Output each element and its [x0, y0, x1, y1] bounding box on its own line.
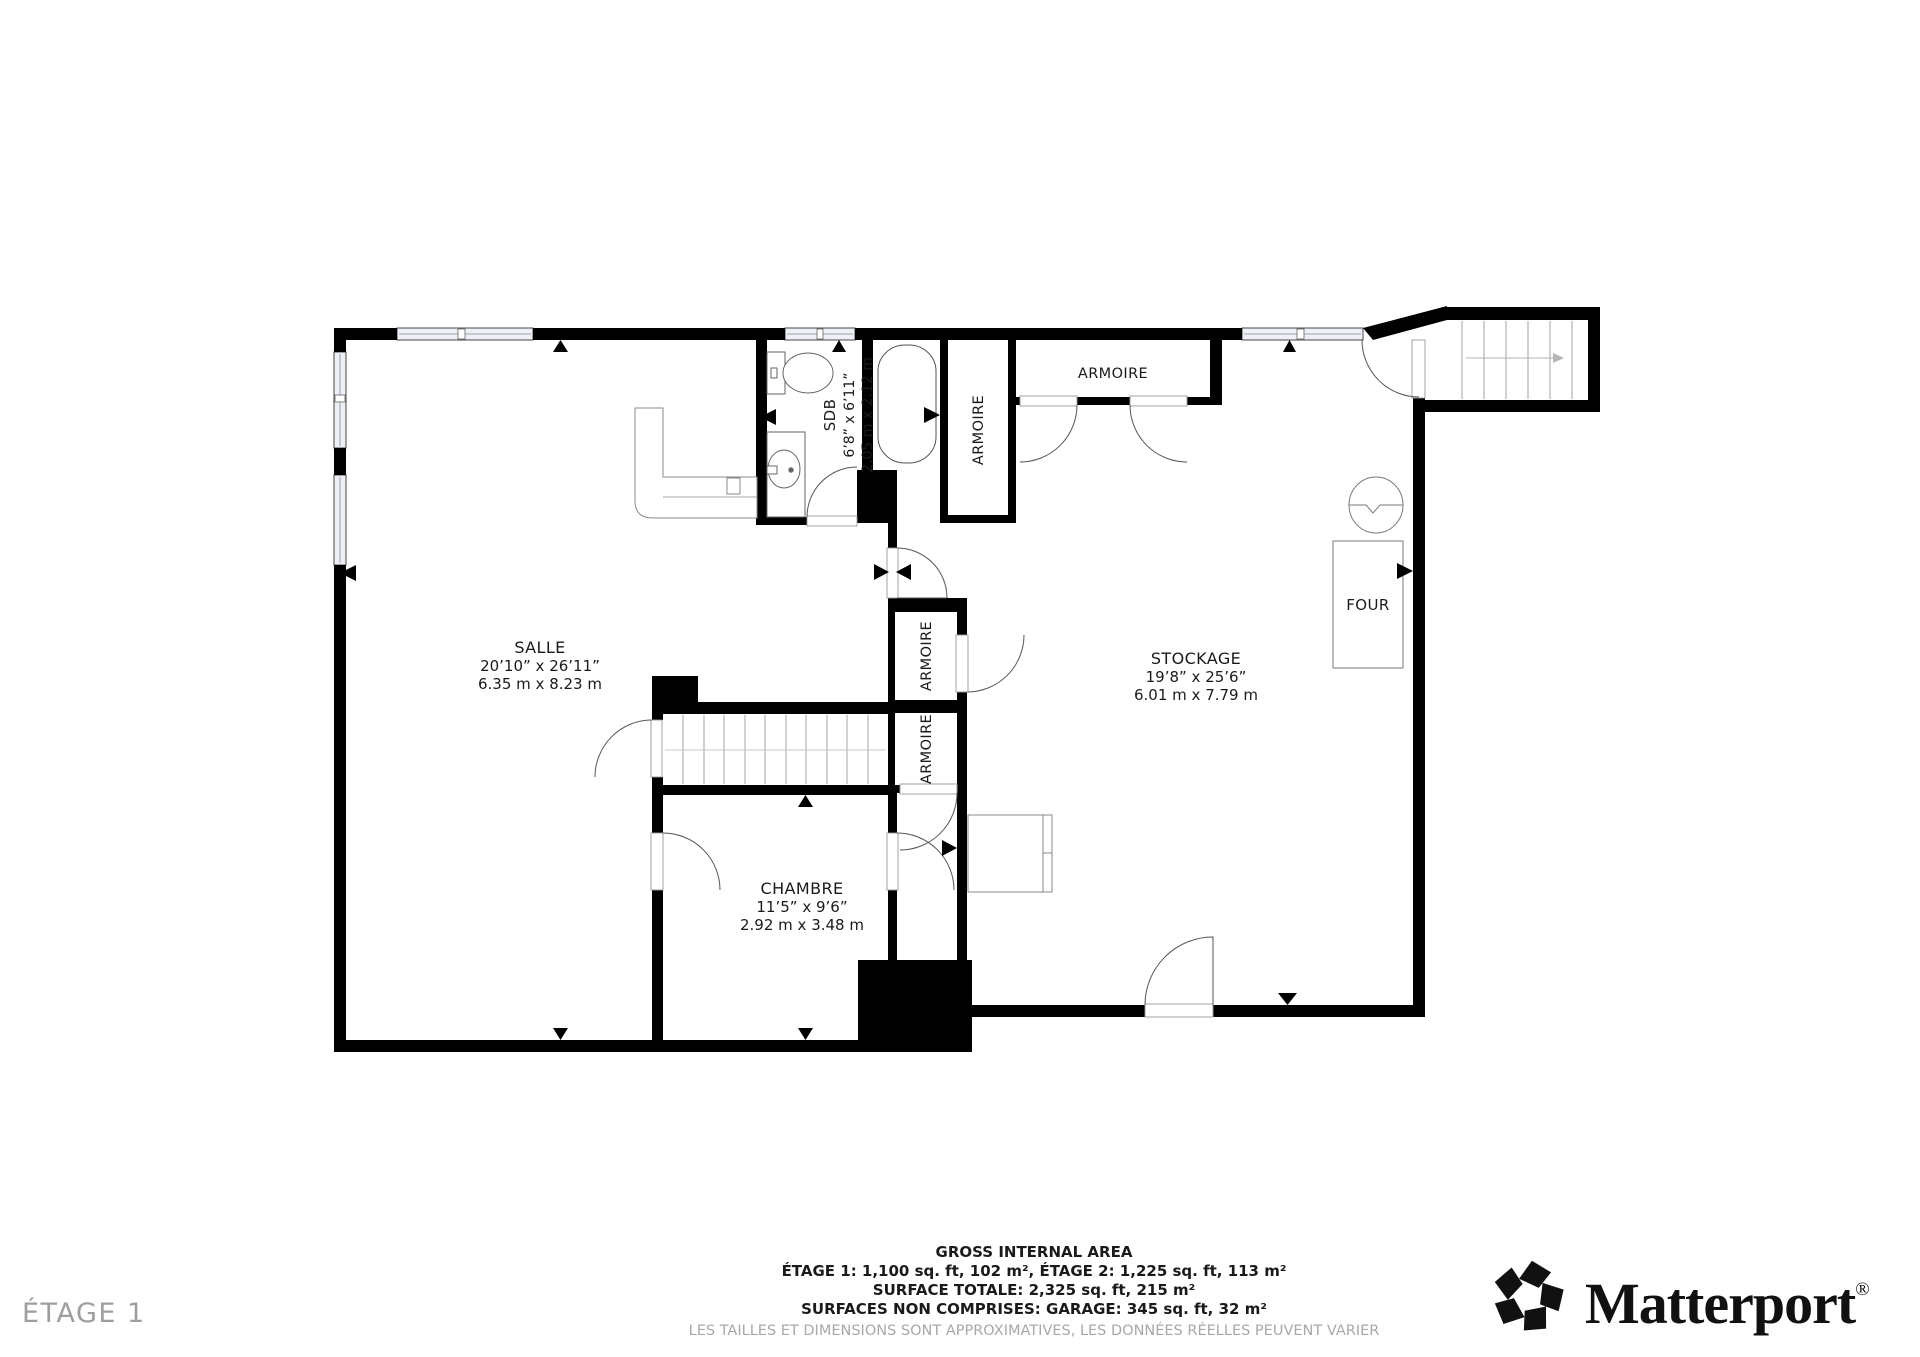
- marker-down: [798, 1028, 813, 1040]
- door-arc-chambre-left: [663, 833, 720, 890]
- marker-up: [553, 340, 568, 352]
- floors-area-line: ÉTAGE 1: 1,100 sq. ft, 102 m², ÉTAGE 2: …: [689, 1262, 1380, 1281]
- room-dim-imperial: 19’8” x 25’6”: [1146, 668, 1247, 686]
- door-arcs: [595, 340, 1419, 1005]
- door-arc-armoire-top-right: [1130, 405, 1187, 462]
- door-threshold: [651, 720, 662, 777]
- matterport-pinwheel-icon: [1487, 1255, 1569, 1339]
- door-threshold: [956, 635, 968, 692]
- excluded-area-line: SURFACES NON COMPRISES: GARAGE: 345 sq. …: [689, 1300, 1380, 1319]
- room-dim-imperial: 6’8” x 6’11”: [842, 372, 858, 457]
- kitchen-counter: [635, 408, 757, 518]
- window-mullion: [335, 395, 345, 402]
- door-arc-closet1: [967, 635, 1024, 692]
- marker-up: [1283, 340, 1296, 352]
- room-dim-metric: 2.92 m x 3.48 m: [740, 916, 864, 934]
- matterport-wordmark: Matterport®: [1585, 1247, 1869, 1347]
- door-arc-armoire-top-left: [1020, 405, 1077, 462]
- room-dim-metric: 6.01 m x 7.79 m: [1134, 686, 1258, 704]
- wall-stair-stub: [652, 676, 698, 714]
- fixtures: [635, 345, 1403, 892]
- room-name: SDB: [821, 399, 839, 432]
- toilet: [767, 352, 833, 394]
- room-dim-metric: 2.05 m x 2.12 m: [860, 357, 876, 473]
- door-arc-stair-corridor: [595, 720, 652, 777]
- door-threshold: [1130, 396, 1187, 406]
- door-threshold: [887, 833, 898, 890]
- door-arc-chambre-right: [897, 833, 954, 890]
- door-arc-stairs-upper: [1362, 340, 1419, 397]
- closet-label-top: ARMOIRE: [1078, 366, 1148, 382]
- matterport-logo: Matterport®: [1487, 1247, 1869, 1347]
- door-threshold: [651, 833, 663, 890]
- cooktop-control: [727, 478, 740, 494]
- bathroom-vanity: [767, 432, 805, 517]
- door-threshold: [1412, 340, 1425, 398]
- stairs-upper: [1462, 321, 1572, 399]
- wall-diagonal: [1363, 306, 1447, 340]
- stairs-main: [665, 715, 886, 784]
- door-arc-garage: [1145, 937, 1213, 1005]
- room-name: CHAMBRE: [761, 879, 844, 898]
- door-arc-sdb: [807, 467, 857, 517]
- stair-arrow-head: [1553, 353, 1564, 363]
- area-summary: GROSS INTERNAL AREA ÉTAGE 1: 1,100 sq. f…: [689, 1243, 1380, 1342]
- closet-label-hall-lower: ARMOIRE: [919, 714, 935, 784]
- water-heater: [1349, 477, 1403, 533]
- closet-label-bathtub: ARMOIRE: [971, 395, 987, 465]
- door-threshold: [1145, 1004, 1213, 1017]
- marker-up: [798, 795, 813, 807]
- page: { "floor_label": "ÉTAGE 1", "rooms": { "…: [0, 0, 1920, 1357]
- wall-block-sdb: [857, 470, 897, 523]
- room-dim-imperial: 11’5” x 9’6”: [756, 898, 847, 916]
- faucet: [767, 466, 777, 474]
- floor-label: ÉTAGE 1: [22, 1298, 146, 1329]
- room-name: STOCKAGE: [1151, 649, 1241, 668]
- room-dim-imperial: 20’10” x 26’11”: [480, 657, 600, 675]
- washer: [968, 815, 1052, 892]
- closet-label-hall-upper: ARMOIRE: [919, 621, 935, 691]
- floor-plan-canvas: SALLE 20’10” x 26’11” 6.35 m x 8.23 m ST…: [0, 0, 1920, 1357]
- room-label-salle: SALLE 20’10” x 26’11” 6.35 m x 8.23 m: [478, 638, 602, 693]
- marker-right: [1397, 563, 1413, 579]
- window-mullion: [458, 329, 465, 339]
- total-area-line: SURFACE TOTALE: 2,325 sq. ft, 215 m²: [689, 1281, 1380, 1300]
- door-threshold: [900, 784, 957, 794]
- bathtub: [878, 345, 936, 463]
- wall-block-bottom: [858, 960, 972, 1052]
- room-dim-metric: 6.35 m x 8.23 m: [478, 675, 602, 693]
- room-name: SALLE: [514, 638, 565, 657]
- room-label-stockage: STOCKAGE 19’8” x 25’6” 6.01 m x 7.79 m: [1134, 649, 1258, 704]
- window-mullion: [1297, 329, 1304, 339]
- registered-mark: ®: [1855, 1279, 1868, 1300]
- marker-down: [553, 1028, 568, 1040]
- door-threshold: [887, 548, 898, 598]
- door-threshold: [807, 516, 857, 526]
- door-arc-closet2: [900, 793, 957, 850]
- marker-down: [1278, 993, 1297, 1005]
- door-threshold: [1020, 396, 1077, 406]
- room-label-chambre: CHAMBRE 11’5” x 9’6” 2.92 m x 3.48 m: [740, 879, 864, 934]
- oven-label: FOUR: [1346, 596, 1389, 614]
- marker-right: [942, 840, 957, 856]
- gross-area-title: GROSS INTERNAL AREA: [689, 1243, 1380, 1262]
- window-mullion: [817, 329, 823, 339]
- marker-up: [832, 340, 846, 352]
- disclaimer-text: LES TAILLES ET DIMENSIONS SONT APPROXIMA…: [689, 1321, 1380, 1342]
